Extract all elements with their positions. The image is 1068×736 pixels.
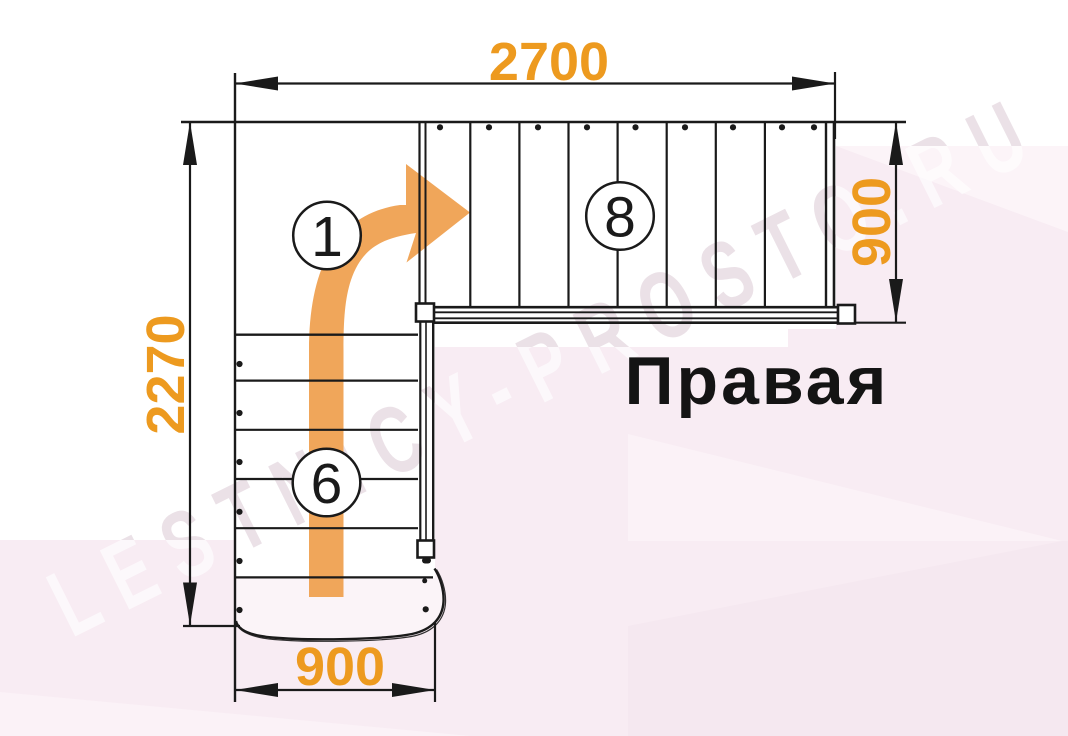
svg-text:Правая: Правая: [625, 343, 890, 419]
svg-text:2270: 2270: [136, 314, 196, 434]
svg-text:900: 900: [295, 637, 385, 697]
svg-text:900: 900: [842, 177, 902, 267]
svg-text:1: 1: [311, 205, 343, 269]
svg-text:2700: 2700: [489, 32, 609, 92]
svg-text:6: 6: [311, 452, 343, 516]
svg-text:8: 8: [604, 186, 636, 250]
